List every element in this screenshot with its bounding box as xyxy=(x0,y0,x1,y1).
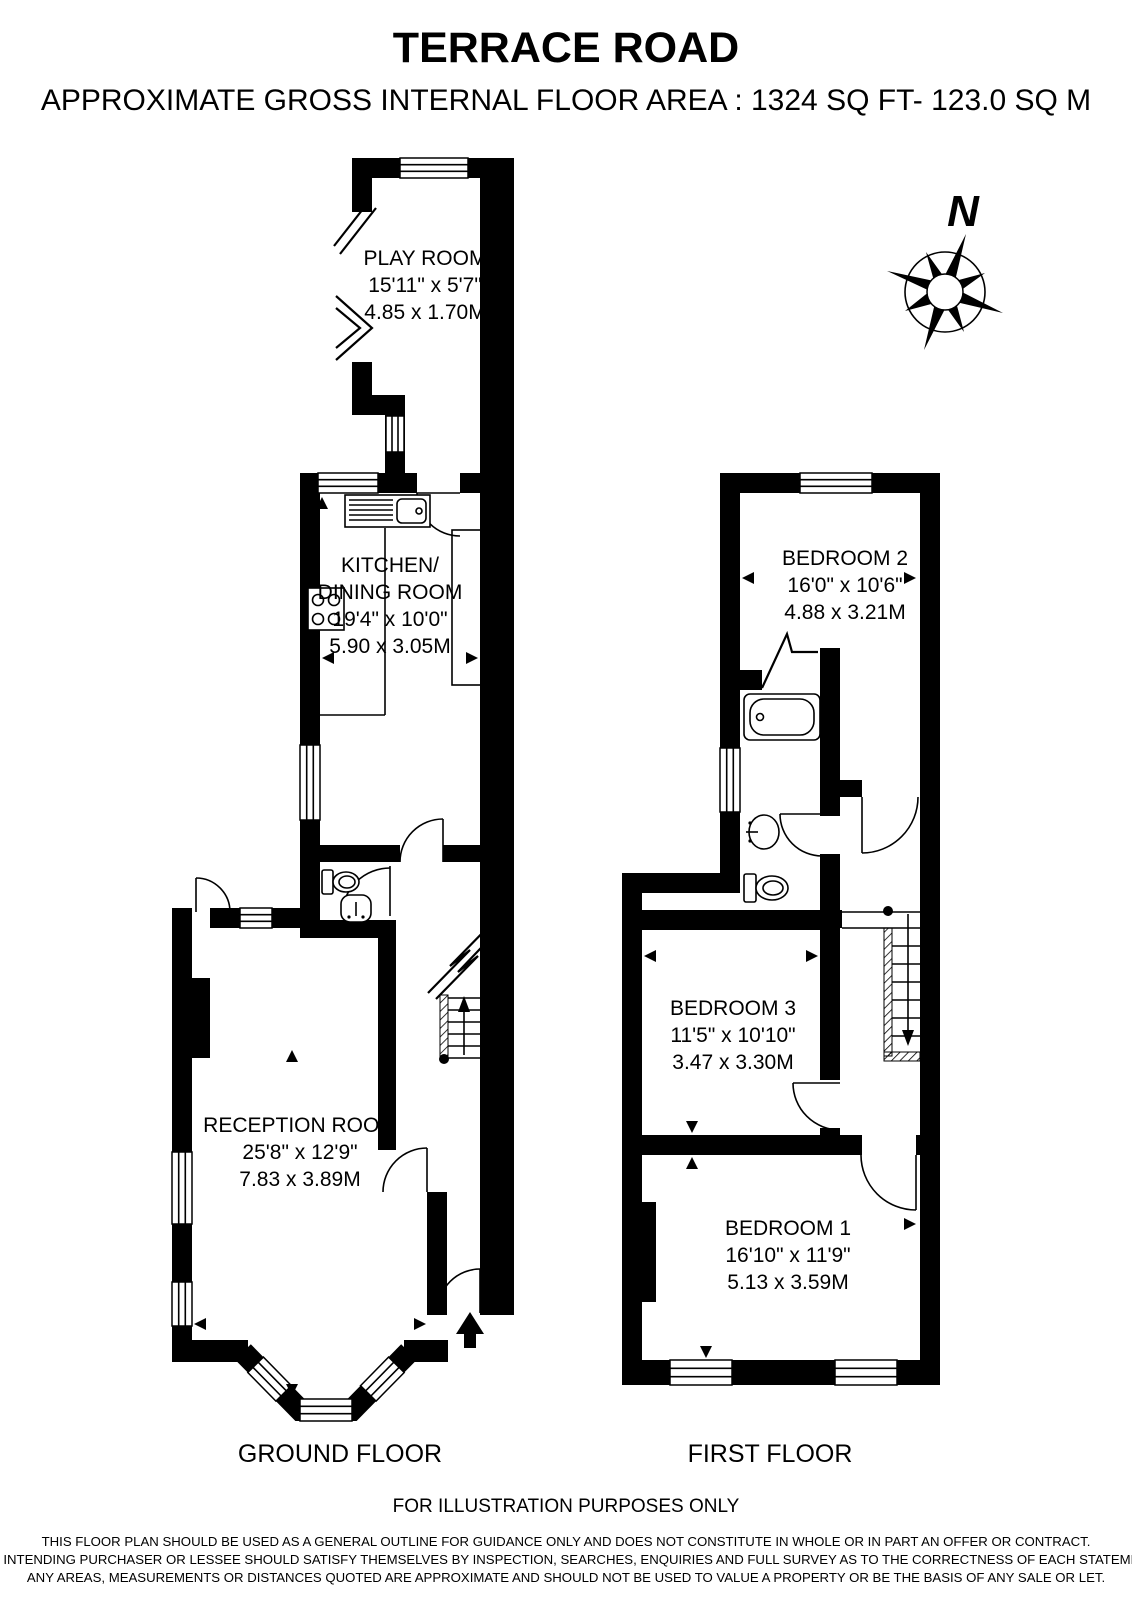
disclaimer-line-3: ANY AREAS, MEASUREMENTS OR DISTANCES QUO… xyxy=(27,1570,1105,1585)
reception-top-window xyxy=(240,908,272,928)
bedroom1-window-right xyxy=(835,1360,897,1385)
first-floor-plan: BEDROOM 2 16'0" x 10'6" 4.88 x 3.21M BED… xyxy=(622,473,940,1468)
bathroom-basin xyxy=(746,815,779,849)
bedroom1-name: BEDROOM 1 xyxy=(725,1217,851,1240)
wc-basin xyxy=(341,895,371,922)
ground-floor-label: GROUND FLOOR xyxy=(238,1440,442,1468)
page-subtitle: APPROXIMATE GROSS INTERNAL FLOOR AREA : … xyxy=(41,84,1091,117)
bay-window-center-pane xyxy=(300,1399,352,1421)
reception-left-window-2 xyxy=(172,1282,192,1326)
compass-rose-icon: N xyxy=(887,187,1003,350)
bedroom1-size-metric: 5.13 x 3.59M xyxy=(727,1271,848,1294)
stair-newel-dot xyxy=(439,1054,449,1064)
bedroom2-name: BEDROOM 2 xyxy=(782,547,908,570)
bedroom2-size-metric: 4.88 x 3.21M xyxy=(784,601,905,624)
bedroom2-top-window xyxy=(800,473,872,493)
footer: FOR ILLUSTRATION PURPOSES ONLY THIS FLOO… xyxy=(0,1496,1132,1585)
stair-rail xyxy=(884,1052,920,1061)
bedroom3-size-imperial: 11'5" x 10'10" xyxy=(670,1024,795,1047)
first-floor-label: FIRST FLOOR xyxy=(688,1440,853,1468)
header: TERRACE ROAD APPROXIMATE GROSS INTERNAL … xyxy=(41,24,1091,117)
stair-newel-dot xyxy=(883,906,893,916)
playroom-name: PLAY ROOM xyxy=(364,247,487,270)
stairs-down-arrow xyxy=(902,1030,914,1046)
bedroom1-window-left xyxy=(670,1360,732,1385)
ground-floor-plan: PLAY ROOM 15'11" x 5'7" 4.85 x 1.70M KIT… xyxy=(172,158,514,1468)
first-floor-fixtures xyxy=(744,694,820,902)
bedroom3-size-metric: 3.47 x 3.30M xyxy=(672,1051,793,1074)
reception-size-imperial: 25'8" x 12'9" xyxy=(242,1141,357,1164)
wc-toilet xyxy=(322,870,359,894)
compass-hub xyxy=(927,274,963,310)
bedroom3-door xyxy=(793,1083,840,1130)
reception-left-window-1 xyxy=(172,1152,192,1224)
reception-name: RECEPTION ROOM xyxy=(203,1114,397,1137)
bedroom2-size-imperial: 16'0" x 10'6" xyxy=(787,574,902,597)
kitchen-top-window xyxy=(318,473,378,493)
kitchen-hall-door xyxy=(400,819,443,862)
bedroom1-door xyxy=(861,1155,916,1210)
bedroom2-door xyxy=(862,797,918,853)
illustration-note: FOR ILLUSTRATION PURPOSES ONLY xyxy=(393,1496,740,1517)
bedroom1-size-imperial: 16'10" x 11'9" xyxy=(725,1244,850,1267)
playroom-size-imperial: 15'11" x 5'7" xyxy=(368,274,482,297)
reception-size-metric: 7.83 x 3.89M xyxy=(239,1168,360,1191)
ground-floor-windows xyxy=(172,158,468,1421)
kitchen-sink xyxy=(345,495,430,527)
floorplan-canvas: TERRACE ROAD APPROXIMATE GROSS INTERNAL … xyxy=(0,0,1132,1600)
stair-rail xyxy=(884,928,892,1056)
reception-hall-door xyxy=(383,1148,427,1192)
ground-floor-walls xyxy=(172,158,514,1410)
playroom-side-window xyxy=(386,416,404,452)
kitchen-size-metric: 5.90 x 3.05M xyxy=(329,635,450,658)
reception-side-door xyxy=(196,878,230,912)
kitchen-size-imperial: 19'4" x 10'0" xyxy=(332,608,447,631)
playroom-size-metric: 4.85 x 1.70M xyxy=(364,301,485,324)
playroom-top-window xyxy=(400,158,468,178)
first-floor-labels: BEDROOM 2 16'0" x 10'6" 4.88 x 3.21M BED… xyxy=(670,547,908,1468)
entrance-arrow xyxy=(456,1312,484,1348)
first-floor-stairs xyxy=(842,906,920,1061)
bathroom-window xyxy=(720,748,740,812)
kitchen-name-line2: DINING ROOM xyxy=(318,581,463,604)
bedroom2-closet-fold xyxy=(762,634,818,688)
kitchen-left-window xyxy=(300,745,320,820)
stair-rail xyxy=(440,995,448,1060)
bedroom3-name: BEDROOM 3 xyxy=(670,997,796,1020)
bathroom-door xyxy=(780,814,822,856)
bathroom-toilet xyxy=(744,874,788,902)
kitchen-name-line1: KITCHEN/ xyxy=(341,554,439,577)
compass-north-label: N xyxy=(947,187,980,236)
disclaimer-line-2: ANY INTENDING PURCHASER OR LESSEE SHOULD… xyxy=(0,1552,1132,1567)
disclaimer-line-1: THIS FLOOR PLAN SHOULD BE USED AS A GENE… xyxy=(42,1534,1091,1549)
page-title: TERRACE ROAD xyxy=(393,24,739,72)
floorplan-page: TERRACE ROAD APPROXIMATE GROSS INTERNAL … xyxy=(0,0,1132,1600)
bathtub xyxy=(744,694,820,740)
